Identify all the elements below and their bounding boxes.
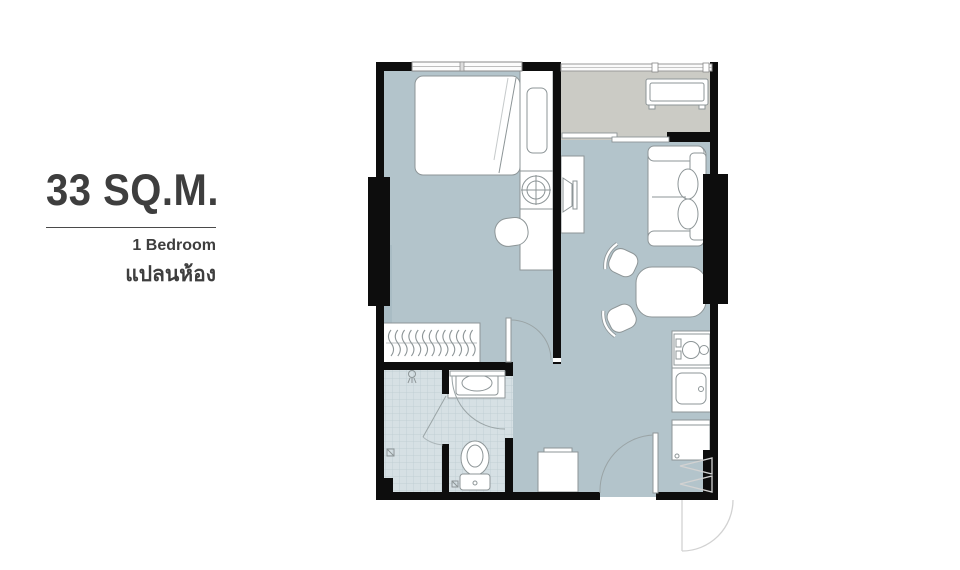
dining-table bbox=[636, 267, 706, 317]
floorplan-page: 33 SQ.M. 1 Bedroom แปลนห้อง bbox=[0, 0, 960, 570]
bedroom-divider-wall bbox=[553, 62, 561, 364]
kitchen-sink bbox=[676, 373, 706, 404]
bed bbox=[415, 76, 520, 175]
wardrobe-hangers bbox=[383, 323, 480, 363]
bathroom-wall bbox=[505, 438, 513, 500]
toilet bbox=[460, 441, 490, 490]
air-conditioner-unit bbox=[646, 79, 708, 109]
left-pillar bbox=[368, 177, 390, 306]
wall-end-jamb bbox=[553, 358, 561, 362]
shower-partition bbox=[442, 366, 449, 394]
shoe-cabinet bbox=[538, 448, 578, 492]
floor-plan bbox=[0, 0, 960, 570]
stove bbox=[674, 334, 710, 365]
sofa bbox=[648, 146, 706, 246]
right-pillar bbox=[703, 174, 728, 304]
balcony-railing bbox=[561, 63, 712, 72]
tv-stand bbox=[561, 156, 584, 233]
bedroom-window bbox=[412, 62, 522, 71]
